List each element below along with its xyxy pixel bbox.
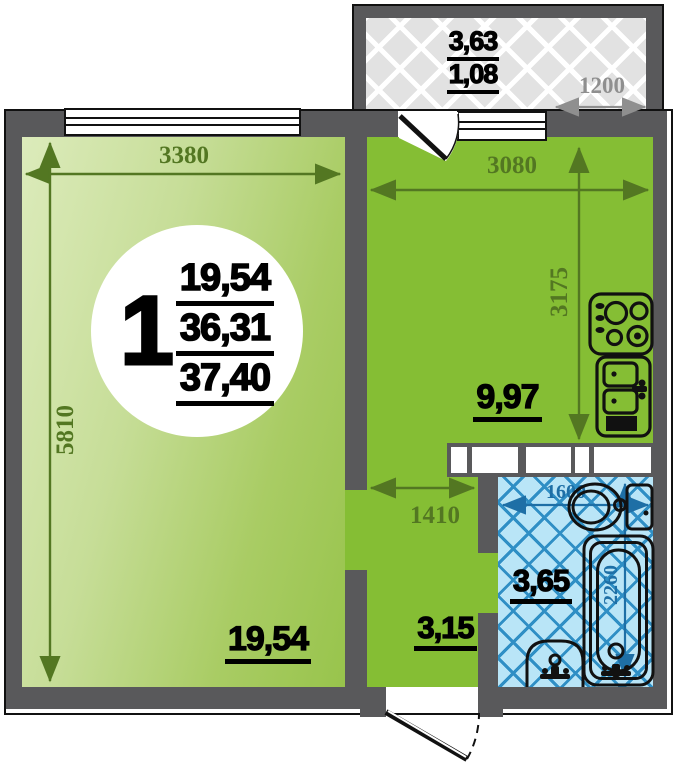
balcony-area-reduced: 1,08	[447, 61, 500, 94]
living-door-opening	[345, 490, 367, 570]
living-width-dim-label: 3380	[134, 143, 234, 168]
bath-height-dim-label: 2260	[601, 530, 623, 640]
wall-left	[6, 111, 22, 709]
entrance-jamb-right	[478, 687, 503, 717]
unit-areas: 19,54 36,31 37,40	[176, 256, 274, 406]
counter-block-1	[451, 447, 467, 473]
wall-bath-upper	[478, 477, 498, 553]
entrance-jamb-left	[360, 687, 386, 717]
kitchen-window	[457, 111, 547, 141]
room-label-living: 19,54	[203, 622, 333, 664]
unit-info-circle: 1 19,54 36,31 37,40	[91, 225, 303, 437]
balcony-area-full: 3,63	[447, 28, 500, 61]
counter-block-5	[594, 447, 651, 473]
entrance-door	[386, 711, 479, 759]
unit-area-living: 19,54	[176, 256, 274, 306]
balcony-width-dim-label: 1200	[560, 74, 644, 97]
unit-number: 1	[120, 290, 172, 372]
wall-bottom	[6, 687, 667, 709]
bath-door-opening	[478, 553, 498, 613]
balcony-door-opening	[398, 111, 457, 137]
counter-block-4	[575, 447, 589, 473]
wall-living-hall-lower	[345, 570, 367, 687]
wall-right	[653, 111, 667, 709]
room-label-kitchen: 9,97	[455, 380, 560, 422]
living-height-dim-label: 5810	[53, 375, 79, 485]
entrance-opening	[385, 687, 478, 709]
room-label-hall: 3,15	[398, 612, 493, 651]
room-label-bath: 3,65	[497, 565, 585, 604]
counter-block-3	[526, 447, 571, 473]
living-window	[64, 108, 301, 136]
kitchen-height-dim-label: 3175	[547, 237, 573, 347]
floor-plan-canvas: 3,63 1,08 1200 1 19,54 36,31 37,40 33	[0, 0, 677, 768]
counter-block-2	[472, 447, 518, 473]
unit-area-total: 36,31	[176, 306, 274, 356]
unit-area-overall: 37,40	[176, 356, 274, 406]
wall-living-hall-upper	[345, 137, 367, 490]
balcony-area-label: 3,63 1,08	[425, 28, 521, 94]
kitchen-width-dim-label: 3080	[462, 153, 562, 178]
hall-width-dim-label: 1410	[400, 503, 470, 528]
bath-width-dim-label: 1600	[526, 482, 606, 502]
